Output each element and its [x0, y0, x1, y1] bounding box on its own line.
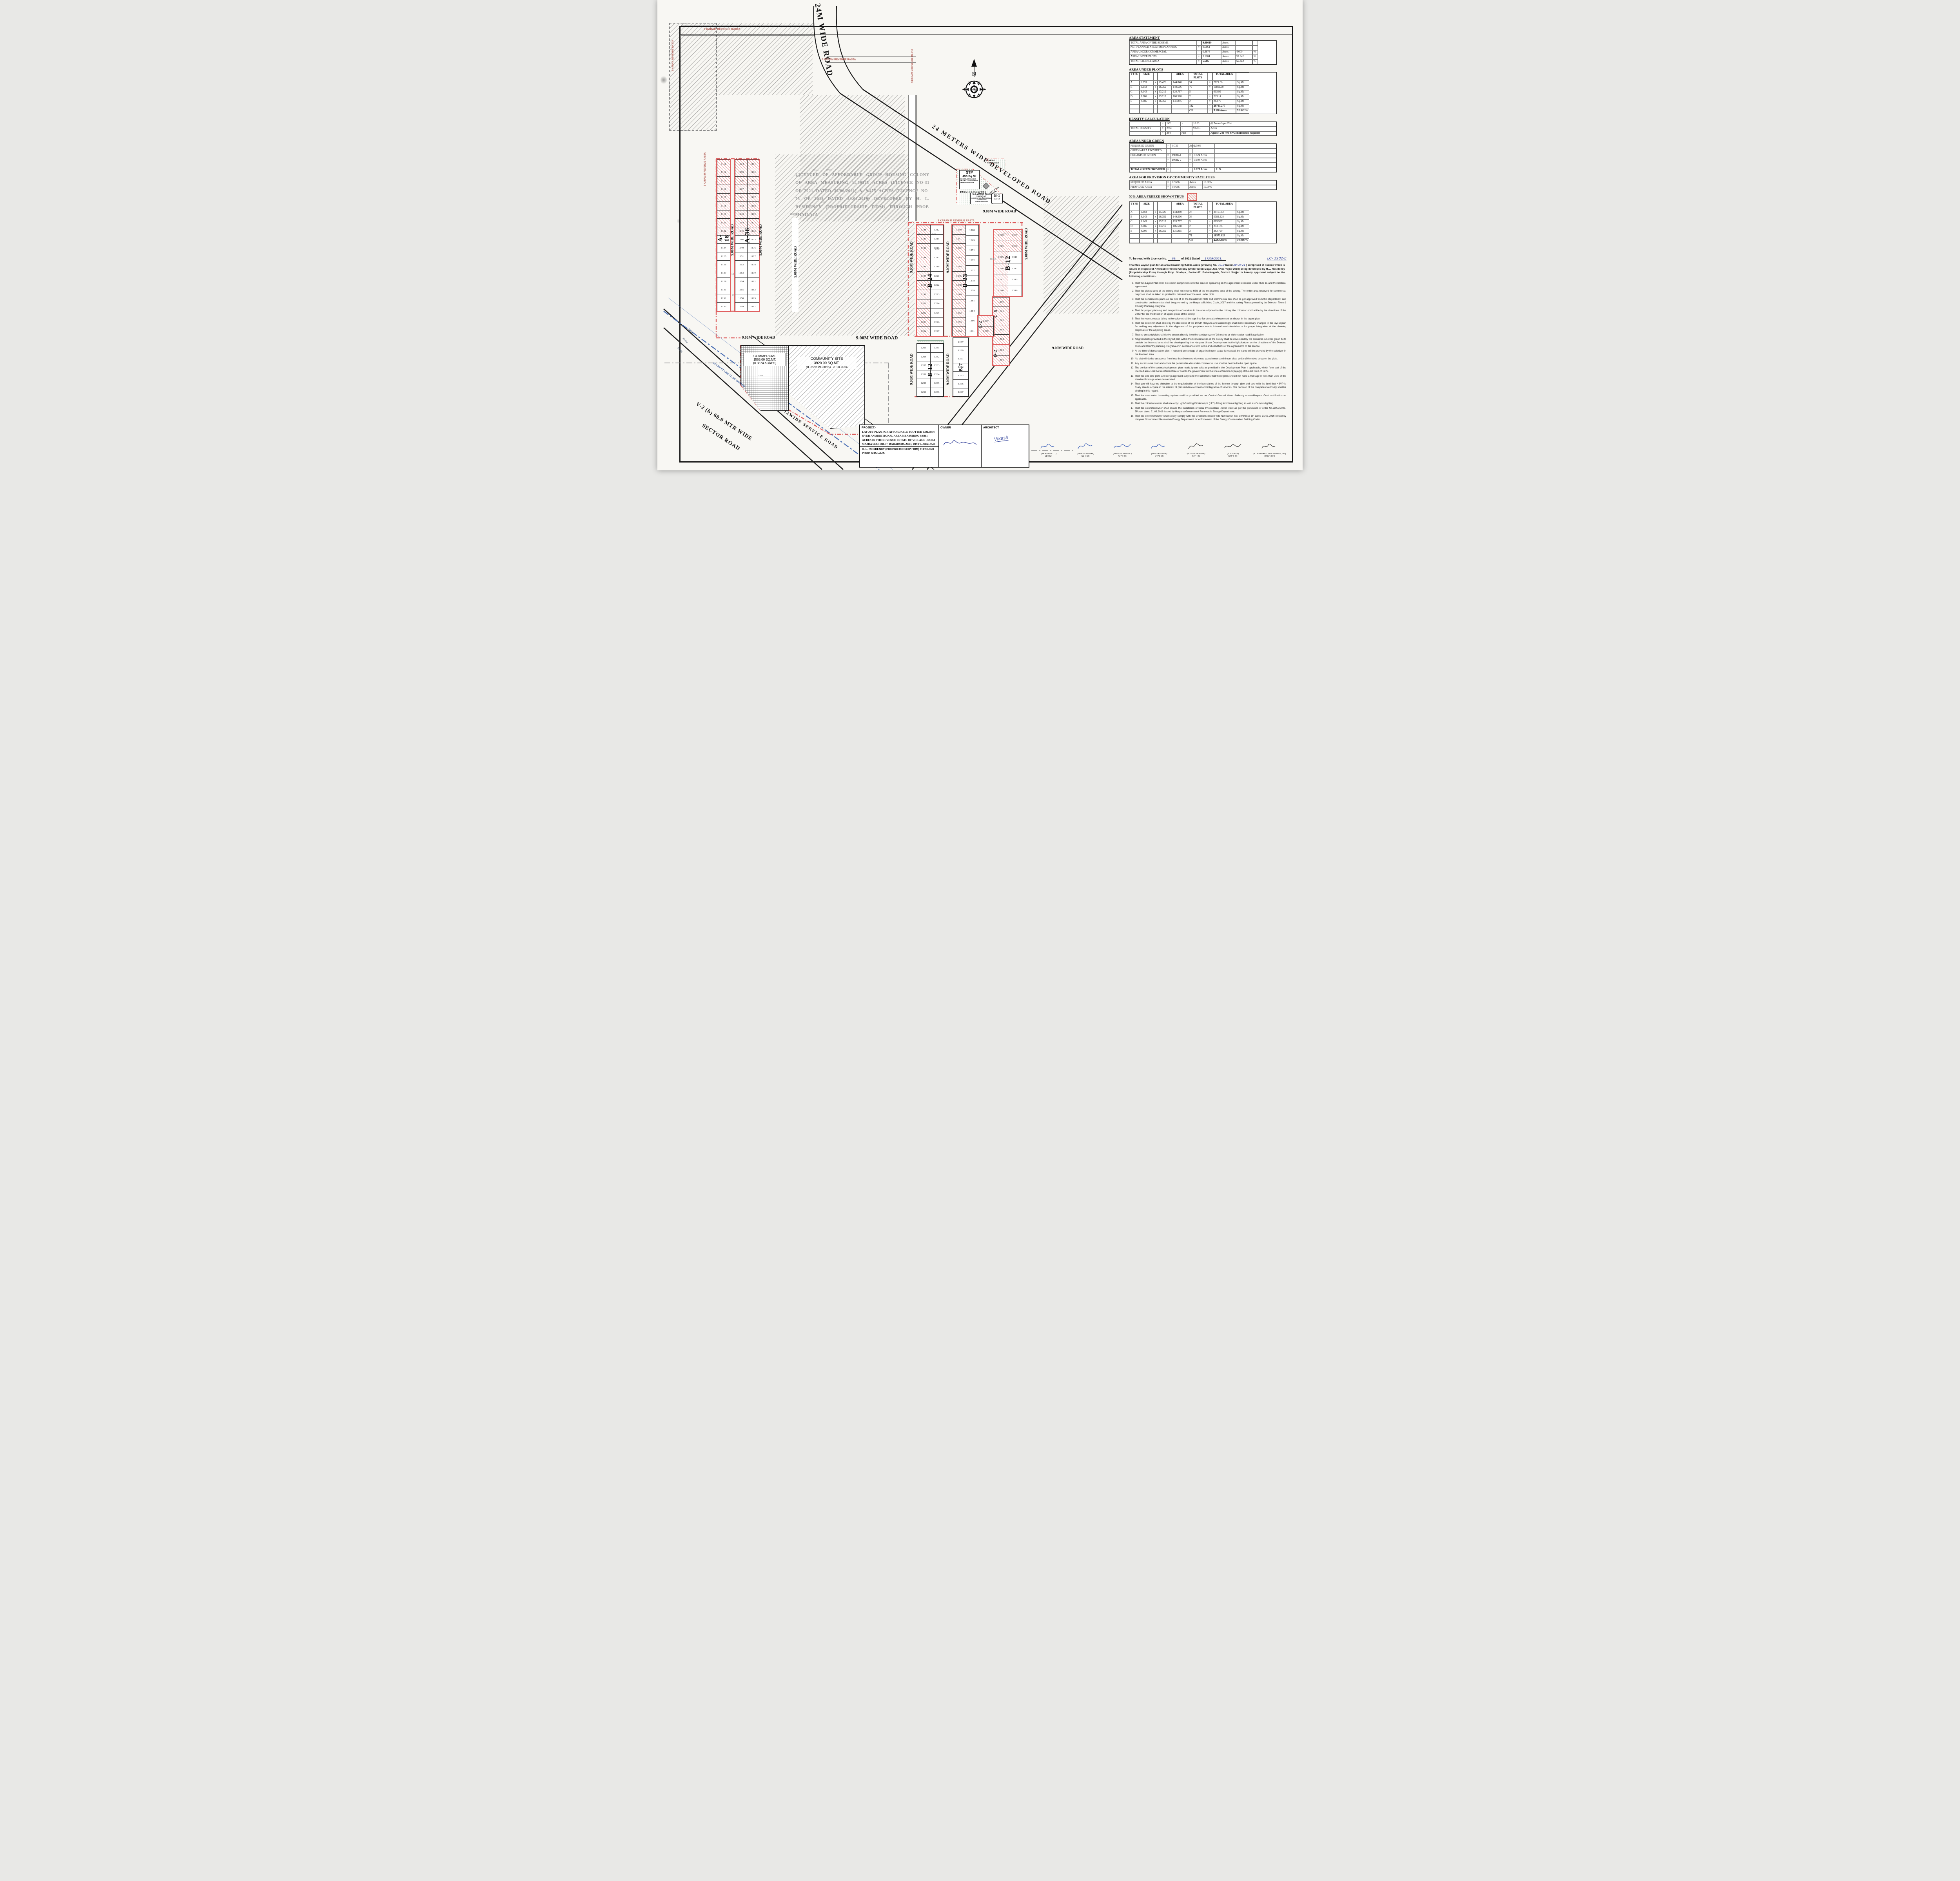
svg-text:S: S: [973, 93, 975, 95]
plot-cell: 1261: [953, 355, 968, 363]
table-cell: Sq.Mt: [1236, 219, 1249, 224]
table-cell: x: [1154, 219, 1158, 224]
table-cell: =: [1197, 45, 1201, 50]
plot-cell: 1191: [917, 243, 930, 253]
table-cell: x: [1154, 229, 1158, 234]
plot-cell: 1188: [917, 225, 930, 234]
plot-cell: 1297: [994, 274, 1008, 285]
north-compass-icon: N NSWE NWNESWSE: [962, 58, 987, 101]
plot-cell: 1267: [953, 388, 968, 396]
table-cell: 5.506: [1201, 60, 1221, 64]
signatory-title: ATP(HQ): [1104, 455, 1140, 457]
plot-cell: 1124: [717, 243, 730, 252]
table-cell: 2: [1188, 100, 1208, 104]
table-cell: [1252, 45, 1258, 50]
plot-block-d2: 13051306D-2: [993, 345, 1009, 365]
table-cell: 2: [1188, 95, 1208, 100]
table-cell: 5: [1188, 90, 1208, 95]
table-cell: [1140, 109, 1154, 114]
plot-cell: 1226: [931, 317, 944, 327]
rasta-label: 3 KARAM M REVENUE RASTA: [704, 152, 706, 187]
condition-item: That the colonizer/owner shall strictly …: [1135, 414, 1286, 421]
official-signature: [1076, 442, 1095, 451]
table-cell: 0.104 Acres: [1193, 158, 1215, 163]
table-cell: 10373.823: [1212, 234, 1236, 238]
table-cell: 106.568: [1172, 95, 1188, 100]
signatory-title: SD (HQ): [1067, 455, 1103, 457]
table-cell: Sq.Mt: [1236, 81, 1249, 85]
road-label: 13.2 KV HT LINE TO BE SHIFTED: [712, 361, 745, 388]
signatory: (P P SINGH)CTP (HR): [1215, 442, 1251, 457]
signatory: (K. MAKRAND PANDURANG, IAS)DTCP (HR): [1252, 442, 1288, 457]
table-cell: Sq.Mt: [1236, 90, 1249, 95]
table-cell: =: [1166, 180, 1171, 185]
table-cell: 8.066: [1140, 224, 1154, 229]
stp-area: 450 Sq.Mt: [960, 174, 979, 178]
plot-cell: 1211: [917, 388, 930, 397]
plot-cell: 1296: [994, 263, 1008, 274]
signatory-title: JD(HQ): [1031, 455, 1067, 457]
plot-cell: 1216: [931, 243, 944, 253]
table-cell: 2: [1188, 224, 1208, 229]
khasra-label: 23: [732, 294, 734, 297]
table-cell: =: [1208, 81, 1212, 85]
table-cell: 0.624 Acres: [1193, 153, 1215, 158]
table-cell: 5: [1188, 219, 1208, 224]
table-cell: SIZE: [1140, 202, 1154, 210]
ug-water-tank-box: U.G.WATER TANK 200 SQ.MT. CONSTRUCTED UN…: [970, 193, 993, 204]
road-label: 24M WIDE ROAD: [813, 3, 834, 77]
svg-text:E: E: [980, 89, 981, 91]
table-cell: TOTAL AREA: [1212, 73, 1236, 81]
table-cell: x: [1154, 85, 1158, 90]
freeze-hatch-swatch: [1187, 193, 1197, 201]
table-cell: [1129, 234, 1140, 238]
scan-smudge: [677, 218, 681, 224]
drawing-date-handwritten: 20-09-21: [1233, 263, 1245, 267]
table-cell: Sq.Mt: [1236, 210, 1249, 215]
table-cell: =: [1166, 153, 1171, 158]
table-cell: E: [1129, 100, 1140, 104]
licence-note-mid: of 2021 Dated: [1181, 257, 1200, 260]
table-cell: [1129, 131, 1161, 136]
plot-cell: 1202: [917, 308, 930, 317]
table-cell: [1158, 234, 1172, 238]
table-cell: 11811.00: [1212, 85, 1236, 90]
plot-cell: 1212: [931, 225, 944, 234]
area-under-plots-table: AREA UNDER PLOTSTYPESIZEAREATOTAL PLOTST…: [1129, 67, 1287, 114]
plot-cell: 1304: [993, 334, 1009, 344]
table-cell: =: [1208, 219, 1212, 224]
scan-smudge: [661, 75, 667, 85]
signatory: (HITESH SHARMA)STP HQ: [1178, 442, 1214, 457]
table-cell: x: [1154, 215, 1158, 219]
table-cell: =: [1188, 158, 1193, 163]
title-block-project: PROJECT:- LAYOUT PLAN FOR AFFORDABLE PLO…: [860, 425, 939, 467]
table-cell: 0.728 Acres: [1193, 167, 1215, 172]
plot-cell: 1167: [748, 193, 759, 201]
table-cell: REQUIRED GREEN: [1129, 144, 1166, 149]
plot-cell: 1162: [748, 168, 759, 176]
table-cell: =: [1197, 55, 1201, 60]
plot-cell: 1131: [717, 286, 730, 294]
dimension-label: 13.500: [677, 347, 683, 354]
condition-item: That the revenue rasta falling in the co…: [1135, 317, 1286, 321]
table-cell: [1140, 238, 1154, 243]
table-cell: 144.840: [1172, 210, 1188, 215]
plot-block-b7: 1257125912611262126312661267B-7: [953, 338, 969, 397]
table-cell: [1129, 109, 1140, 114]
architect-signature: Vikash: [994, 435, 1009, 443]
commercial-site: COMMERCIAL 1568.00 SQ.MT. (0.3874 ACRES): [740, 345, 789, 411]
title-block-architect: ARCHITECT Vikash: [982, 425, 1029, 467]
table-cell: 16.352: [1158, 100, 1172, 104]
plot-cell: 1204: [917, 326, 930, 336]
plot-cell: 1269: [966, 235, 979, 245]
hatch-area-top-left-block: [669, 23, 717, 131]
road-corridor-central: [792, 218, 799, 312]
table-cell: 9.393: [1140, 210, 1154, 215]
table-cell: @ Person's per Plot: [1209, 122, 1276, 127]
plot-cell: 1135: [735, 168, 747, 176]
table-cell: 9.143: [1140, 85, 1154, 90]
plot-cell: 1234: [931, 370, 944, 379]
table-cell: [1172, 238, 1188, 243]
table-cell: =: [1197, 41, 1201, 45]
plot-cell: 1194: [917, 253, 930, 262]
licence-date-handwritten: 17/09/2021.: [1201, 257, 1226, 261]
table-cell: 7821.36: [1212, 81, 1236, 85]
plot-cell: 1241: [953, 234, 965, 244]
svg-text:W: W: [967, 89, 969, 91]
community-acres: (0.9686 ACRES) i.e 10.00%: [797, 365, 857, 369]
table-cell: [1166, 149, 1171, 153]
road-label: 9.00M WIDE ROAD: [730, 224, 734, 256]
table-cell: 72: [1188, 234, 1208, 238]
svg-text:N: N: [972, 71, 976, 76]
plot-cell: 1268: [966, 225, 979, 235]
plot-cell: 1221: [931, 271, 944, 281]
table-cell: 9.6861: [1192, 127, 1209, 131]
table-cell: 7. %: [1215, 167, 1276, 172]
table-cell: [1208, 73, 1212, 81]
road-label: 9.00M WIDE ROAD: [909, 354, 913, 385]
table-cell: [1154, 234, 1158, 238]
table-cell: TOTAL AREA OF THE SCHEME: [1129, 41, 1197, 45]
plot-cell: 1225: [931, 308, 944, 317]
plot-cell: 1295: [994, 252, 1008, 263]
plot-cell: 1316: [1008, 285, 1022, 296]
road-label: 9.00M WIDE ROAD: [1052, 346, 1083, 350]
plot-cell: 1251: [953, 299, 965, 308]
condition-item: That the rain water harvesting system sh…: [1135, 394, 1286, 401]
svg-text:SW: SW: [968, 95, 971, 97]
table-cell: OR: [1188, 238, 1208, 243]
condition-item: No plot will derive an access from less …: [1135, 357, 1286, 361]
table-cell: NET PLANNED AREA FOR PLANNING: [1129, 45, 1197, 50]
drawing-no-handwritten: 7910: [1218, 263, 1225, 267]
plot-cell: 1126: [717, 260, 730, 268]
table-cell: D: [1129, 224, 1140, 229]
table-cell: TOTAL DENSITY: [1129, 127, 1161, 131]
table-cell: 144.840: [1172, 81, 1188, 85]
plot-block-b24: 1188118911911194119611971198119912011202…: [917, 225, 944, 336]
table-cell: =: [1188, 163, 1193, 167]
official-signature: [1113, 442, 1132, 451]
table-cell: 142: [1165, 122, 1180, 127]
plot-cell: 1111: [966, 326, 979, 336]
plot-block-a18: 1111111211151116111711181119112111221123…: [717, 160, 730, 311]
table-cell: Acres: [1221, 60, 1235, 64]
condition-item: That the odd size plots are being approv…: [1135, 374, 1286, 381]
table-cell: [1192, 131, 1209, 136]
plot-cell: 1286: [966, 316, 979, 326]
table-cell: 52.842 %: [1236, 109, 1249, 114]
table-cell: 120.797: [1172, 90, 1188, 95]
plot-cell: 1125: [717, 252, 730, 260]
plot-cell: 1152: [735, 260, 747, 268]
green-table: AREA UNDER GREENREQUIRED GREEN=0.726Acre…: [1129, 139, 1287, 172]
plot-cell: 1262: [953, 363, 968, 371]
table-cell: 56.842: [1235, 60, 1252, 64]
svg-text:NE: NE: [978, 81, 980, 83]
svg-text:N: N: [973, 84, 975, 86]
table-cell: =: [1208, 100, 1212, 104]
table-title: AREA UNDER PLOTS: [1129, 67, 1287, 71]
condition-item: That the demarcation plans as per site o…: [1135, 297, 1286, 308]
plot-cell: 1112: [717, 168, 730, 176]
table-cell: 79: [1188, 85, 1208, 90]
table-cell: 10.00%: [1202, 185, 1276, 190]
table-cell: [1158, 73, 1172, 81]
plot-cell: 1239: [953, 225, 965, 234]
plot-cell: 1151: [735, 252, 747, 260]
table-cell: [1129, 158, 1166, 163]
table-cell: 9.143: [1140, 219, 1154, 224]
svg-text:NW: NW: [968, 81, 971, 83]
table-cell: [1215, 153, 1276, 158]
table-cell: 263.790: [1212, 229, 1236, 234]
park2-triangle: [986, 159, 1005, 171]
table-cell: 0.9686: [1171, 185, 1188, 190]
table-cell: [1154, 109, 1158, 114]
table-cell: =: [1208, 104, 1212, 109]
licence-note-prefix: To be read with Licence No.: [1129, 257, 1167, 260]
plot-cell: 1279: [966, 285, 979, 296]
table-cell: C: [1129, 90, 1140, 95]
plot-cell: 1222: [931, 280, 944, 290]
plot-cell: 1117: [717, 193, 730, 201]
table-cell: =: [1208, 229, 1212, 234]
table-cell: Sq.Mt: [1236, 224, 1249, 229]
table-cell: [1236, 202, 1249, 210]
table-cell: x: [1154, 90, 1158, 95]
table-cell: 4.000: [1235, 50, 1252, 55]
road-label: 9.00M WIDE ROAD: [946, 354, 950, 385]
plot-cell: 1209: [917, 379, 930, 388]
table-cell: %: [1252, 60, 1258, 64]
signatory: (RAKESH BANSAL)ATP(HQ): [1104, 442, 1140, 457]
plot-cell: 1142: [735, 201, 747, 210]
official-signature: [1150, 442, 1169, 451]
table-cell: 213.14: [1212, 95, 1236, 100]
plot-cell: 1217: [931, 253, 944, 262]
table-cell: Against 240-400 PPA Minimmum required: [1209, 131, 1276, 136]
table-cell: [1158, 202, 1172, 210]
khasra-label: 18: [731, 273, 734, 276]
plot-cell: 1299: [993, 297, 1009, 307]
table-cell: %: [1252, 55, 1258, 60]
signatory-title: DTP(HQ): [1141, 455, 1177, 457]
plot-cell: 1118: [717, 201, 730, 210]
table-cell: [1215, 163, 1276, 167]
table-title: AREA FOR PROVISION OF COMMUNITY FACILITI…: [1129, 175, 1287, 179]
plot-cell: 1218: [931, 262, 944, 271]
plot-cell: 1278: [966, 276, 979, 286]
table-cell: 263.79: [1212, 100, 1236, 104]
condition-item: That the plotted area of the colony shal…: [1135, 289, 1286, 296]
table-cell: AREA: [1172, 73, 1188, 81]
table-cell: x: [1154, 210, 1158, 215]
table-cell: 264: [1165, 131, 1180, 136]
architect-label: ARCHITECT: [982, 425, 1029, 430]
table-cell: x: [1154, 100, 1158, 104]
road-label: SECTOR ROAD: [701, 423, 741, 452]
plot-cell: 1155: [735, 286, 747, 294]
plot-cell: 1123: [717, 235, 730, 243]
plot-cell: 1115: [717, 176, 730, 185]
table-cell: =: [1197, 50, 1201, 55]
plot-cell: 1303: [993, 325, 1009, 334]
table-cell: 13.212: [1158, 224, 1172, 229]
table-cell: x: [1154, 95, 1158, 100]
plot-cell: 1259: [953, 346, 968, 354]
plot-cell: 1168: [748, 201, 759, 210]
hatch-area-top-strip: [715, 23, 813, 95]
table-cell: A: [1129, 210, 1140, 215]
table-cell: Sq.Mt: [1236, 229, 1249, 234]
plot-cell: 1288: [978, 326, 993, 336]
table-cell: [1171, 163, 1188, 167]
table-cell: [1129, 122, 1161, 127]
project-label: PROJECT:-: [860, 425, 938, 430]
plot-cell: 1136: [735, 176, 747, 185]
statement-panel: AREA STATEMENTTOTAL AREA OF THE SCHEME=9…: [1129, 33, 1287, 423]
official-signature: [1039, 442, 1058, 451]
owner-label: OWNER: [939, 425, 981, 430]
plot-cell: 1179: [748, 269, 759, 277]
area-statement-table: AREA STATEMENTTOTAL AREA OF THE SCHEME=9…: [1129, 36, 1287, 65]
conditions-list: That this Layout Plan shall be read in c…: [1129, 281, 1286, 422]
table-cell: [1215, 158, 1276, 163]
community-area: 3920.00 SQ.MT.: [797, 361, 857, 365]
table-cell: 9.143: [1140, 215, 1154, 219]
plot-cell: 1233: [931, 361, 944, 370]
table-cell: [1158, 109, 1172, 114]
plot-cell: 1176: [748, 243, 759, 252]
road-label: 9.00M WIDE ROAD: [946, 241, 950, 273]
table-cell: [1154, 104, 1158, 109]
plot-cell: 1119: [717, 210, 730, 218]
table-cell: 16.352: [1158, 215, 1172, 219]
table-cell: 16.352: [1158, 85, 1172, 90]
stp-title: STP: [960, 171, 979, 174]
table-cell: TYPE: [1129, 202, 1140, 210]
plot-b1-box: B-1 1307A: [991, 194, 1003, 203]
plot-cell: 1146: [735, 235, 747, 243]
table-cell: PROVIDED AREA: [1129, 185, 1166, 190]
table-cell: 36: [1188, 215, 1208, 219]
layout-plan-sheet: LICENCED OF AFFORDABLE GROUP HOUSING COL…: [657, 0, 1303, 470]
table-cell: GREEN AREA PROVIDED: [1129, 149, 1166, 153]
table-cell: 13.212: [1158, 219, 1172, 224]
ugwt-note: CONSTRUCTED UNDER GROUND COVERED WITH GR…: [971, 198, 993, 203]
road-label: 9.00M WIDE ROAD: [742, 336, 775, 340]
table-title: 50% AREA FREEZE SHOWN THUS: [1129, 193, 1287, 201]
table-cell: 50.086 %: [1236, 238, 1249, 243]
table-cell: 5.118 Acres: [1212, 109, 1236, 114]
licence-no-handwritten: 69.: [1168, 257, 1180, 261]
table-cell: 106.568: [1172, 224, 1188, 229]
plot-cell: 1182: [748, 286, 759, 294]
table-cell: 5382.228: [1212, 215, 1236, 219]
signatory: (BABITA GUPTA)DTP(HQ): [1141, 442, 1177, 457]
plot-cell: 1306: [993, 355, 1009, 365]
table-cell: =: [1208, 90, 1212, 95]
condition-item: At the time of demarcation plan, if requ…: [1135, 349, 1286, 356]
condition-item: That the colonizer shall abide by the di…: [1135, 321, 1286, 332]
density-table: DENSITY CALCULATION=142x18.00@ Person's …: [1129, 117, 1287, 136]
plot-cell: 1224: [931, 299, 944, 308]
plot-cell: 1243: [953, 253, 965, 262]
plot-cell: 1128: [717, 277, 730, 285]
dimension-label: 21.300: [688, 328, 694, 335]
plot-cell: 1144: [735, 218, 747, 227]
table-cell: PPA: [1180, 131, 1192, 136]
signatory-title: CTP (HR): [1215, 455, 1251, 457]
plot-cell: 1236: [931, 388, 944, 397]
plot-cell: 1249: [953, 290, 965, 299]
plot-cell: 1231: [931, 344, 944, 352]
table-cell: x: [1180, 122, 1192, 127]
stp-note: CONSTRUCTED UNDER GROUND COVERED WITH GR…: [960, 178, 979, 184]
svg-text:SE: SE: [978, 95, 980, 97]
plot-cell: 1198: [917, 280, 930, 290]
table-cell: =: [1208, 234, 1212, 238]
table-cell: =: [1208, 210, 1212, 215]
table-cell: [1215, 144, 1276, 149]
table-cell: =: [1161, 122, 1165, 127]
table-title: DENSITY CALCULATION: [1129, 117, 1287, 121]
plot-cell: 1284: [966, 306, 979, 316]
plot-cell: 1141: [735, 193, 747, 201]
hatch-area-east: [1044, 196, 1119, 314]
plot-cell: 1187: [748, 302, 759, 310]
plot-cell: 1244: [953, 262, 965, 271]
community-title: COMMUNITY SITE: [797, 357, 857, 361]
official-signature: [1187, 442, 1205, 451]
table-cell: [1158, 238, 1172, 243]
community-site: COMMUNITY SITE 3920.00 SQ.MT. (0.9686 AC…: [788, 345, 865, 429]
table-cell: Acres: [1221, 55, 1235, 60]
table-cell: 2.563 Acres: [1212, 238, 1236, 243]
plot-cell: 1277: [966, 265, 979, 276]
table-cell: 120.797: [1172, 219, 1188, 224]
table-cell: Sq.Mt: [1236, 95, 1249, 100]
plot-block-e2: 12871288E-2: [978, 316, 994, 336]
table-cell: [1236, 73, 1249, 81]
table-cell: Sq.Mt: [1236, 104, 1249, 109]
